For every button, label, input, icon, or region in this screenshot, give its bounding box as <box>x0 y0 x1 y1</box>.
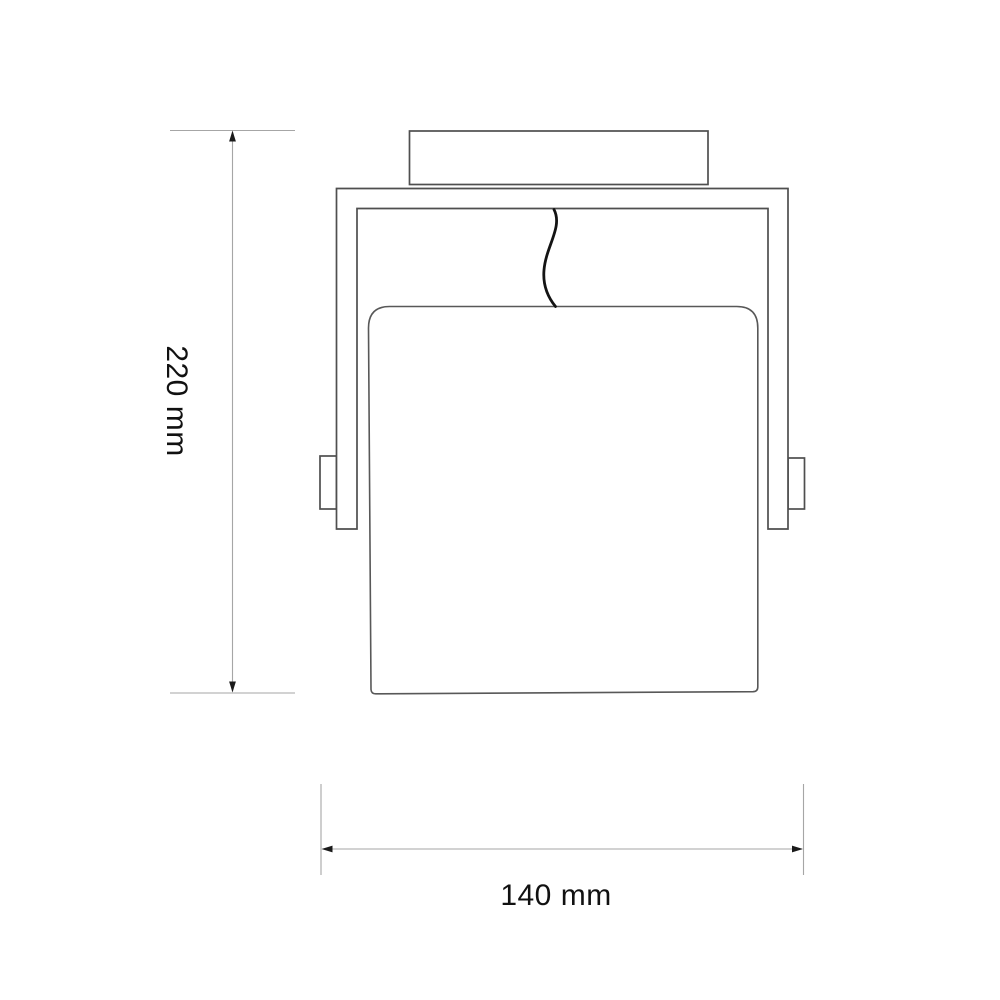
canopy-outline <box>410 131 709 185</box>
power-cable <box>544 210 557 307</box>
technical-drawing-canvas: 220 mm 140 mm <box>0 0 1000 1000</box>
lamp-fixture <box>320 131 805 694</box>
arrow-right-icon <box>792 846 803 853</box>
width-dimension-label: 140 mm <box>500 879 611 912</box>
lamp-shade <box>369 307 758 694</box>
arrow-up-icon <box>229 131 236 142</box>
lamp-dimension-diagram: 220 mm 140 mm <box>0 0 1000 1000</box>
knob-left <box>320 456 337 509</box>
arrow-down-icon <box>229 682 236 693</box>
height-dimension-label: 220 mm <box>160 345 193 456</box>
arrow-left-icon <box>322 846 333 853</box>
knob-right <box>788 458 805 509</box>
